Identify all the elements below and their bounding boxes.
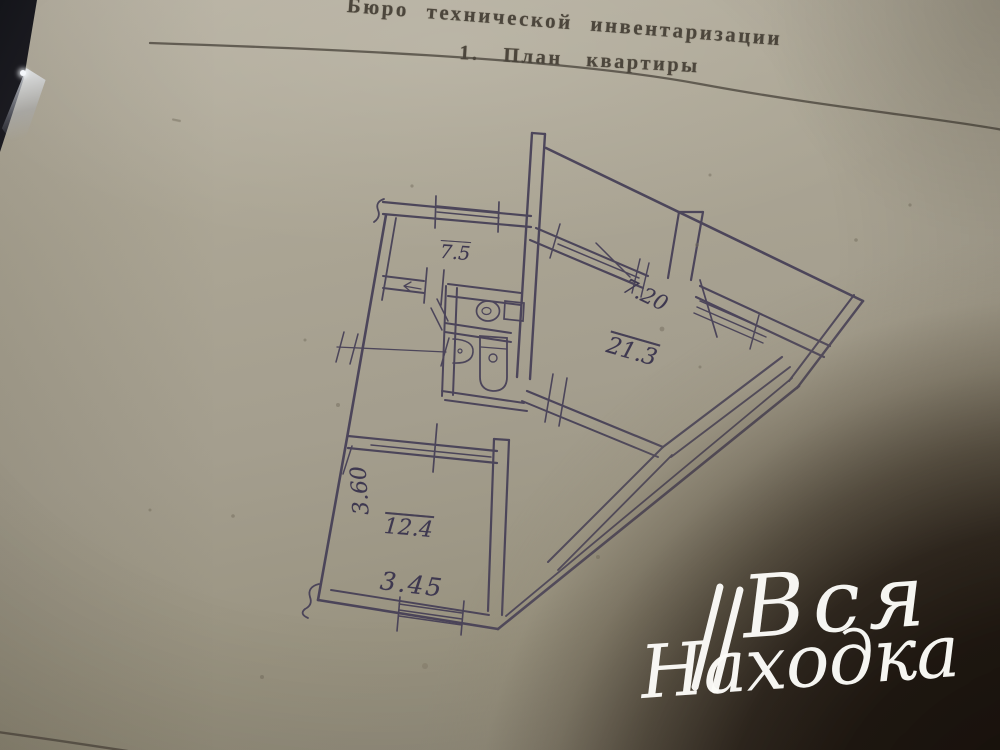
glint-highlight-dot	[20, 70, 26, 76]
bathtub-icon	[480, 336, 507, 391]
hall-dimension-marks	[336, 332, 449, 366]
photographed-document: Бюро технической инвентаризации 1. План …	[0, 0, 1000, 750]
corridor-walls	[530, 212, 830, 357]
large-room-walls	[522, 357, 790, 570]
sink-icon	[453, 339, 473, 363]
outer-walls	[303, 133, 863, 629]
window-top-left	[435, 196, 499, 232]
lower-room-walls	[343, 424, 509, 635]
